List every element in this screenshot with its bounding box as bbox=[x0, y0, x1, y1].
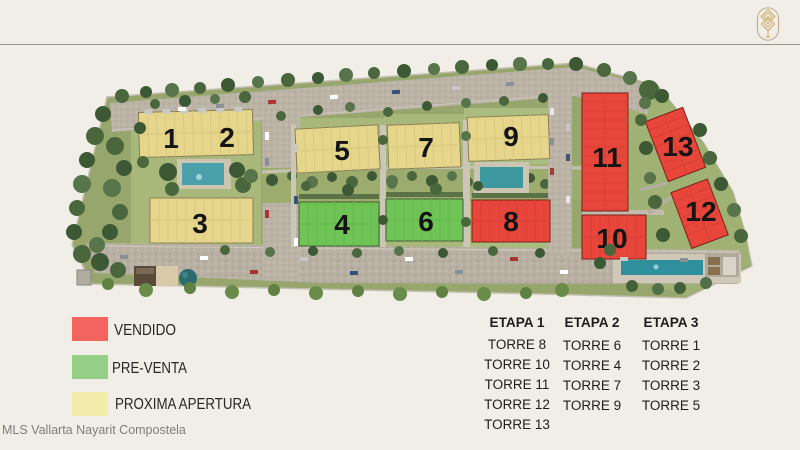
svg-text:PRE-VENTA: PRE-VENTA bbox=[112, 360, 187, 377]
svg-text:11: 11 bbox=[592, 142, 622, 173]
svg-text:TORRE 10: TORRE 10 bbox=[484, 357, 550, 372]
svg-text:VENDIDO: VENDIDO bbox=[114, 322, 176, 339]
svg-text:1: 1 bbox=[163, 123, 179, 154]
svg-text:TORRE 12: TORRE 12 bbox=[484, 397, 550, 412]
svg-text:TORRE 13: TORRE 13 bbox=[484, 417, 550, 432]
svg-text:ETAPA 3: ETAPA 3 bbox=[644, 314, 699, 330]
svg-text:6: 6 bbox=[418, 206, 434, 237]
svg-text:13: 13 bbox=[662, 131, 693, 162]
svg-text:TORRE 8: TORRE 8 bbox=[488, 337, 546, 352]
svg-text:TORRE 11: TORRE 11 bbox=[485, 377, 550, 392]
svg-text:12: 12 bbox=[685, 196, 716, 227]
svg-text:TORRE 1: TORRE 1 bbox=[642, 338, 700, 353]
svg-text:5: 5 bbox=[334, 135, 350, 166]
svg-text:PROXIMA APERTURA: PROXIMA APERTURA bbox=[115, 396, 251, 413]
svg-text:8: 8 bbox=[503, 206, 519, 237]
svg-text:7: 7 bbox=[418, 132, 434, 163]
svg-text:ETAPA 2: ETAPA 2 bbox=[565, 314, 620, 330]
svg-text:9: 9 bbox=[503, 121, 519, 152]
svg-text:TORRE 4: TORRE 4 bbox=[563, 358, 622, 373]
svg-text:2: 2 bbox=[219, 122, 235, 153]
svg-text:ETAPA 1: ETAPA 1 bbox=[490, 314, 545, 330]
svg-text:MLS Vallarta Nayarit Compostel: MLS Vallarta Nayarit Compostela bbox=[2, 423, 186, 437]
svg-text:TORRE 5: TORRE 5 bbox=[642, 398, 700, 413]
svg-text:TORRE 9: TORRE 9 bbox=[563, 398, 621, 413]
svg-text:TORRE 2: TORRE 2 bbox=[642, 358, 700, 373]
svg-text:TORRE 3: TORRE 3 bbox=[642, 378, 700, 393]
svg-text:3: 3 bbox=[192, 208, 208, 239]
svg-text:TORRE 7: TORRE 7 bbox=[563, 378, 621, 393]
svg-text:4: 4 bbox=[334, 209, 350, 240]
svg-text:TORRE 6: TORRE 6 bbox=[563, 338, 621, 353]
